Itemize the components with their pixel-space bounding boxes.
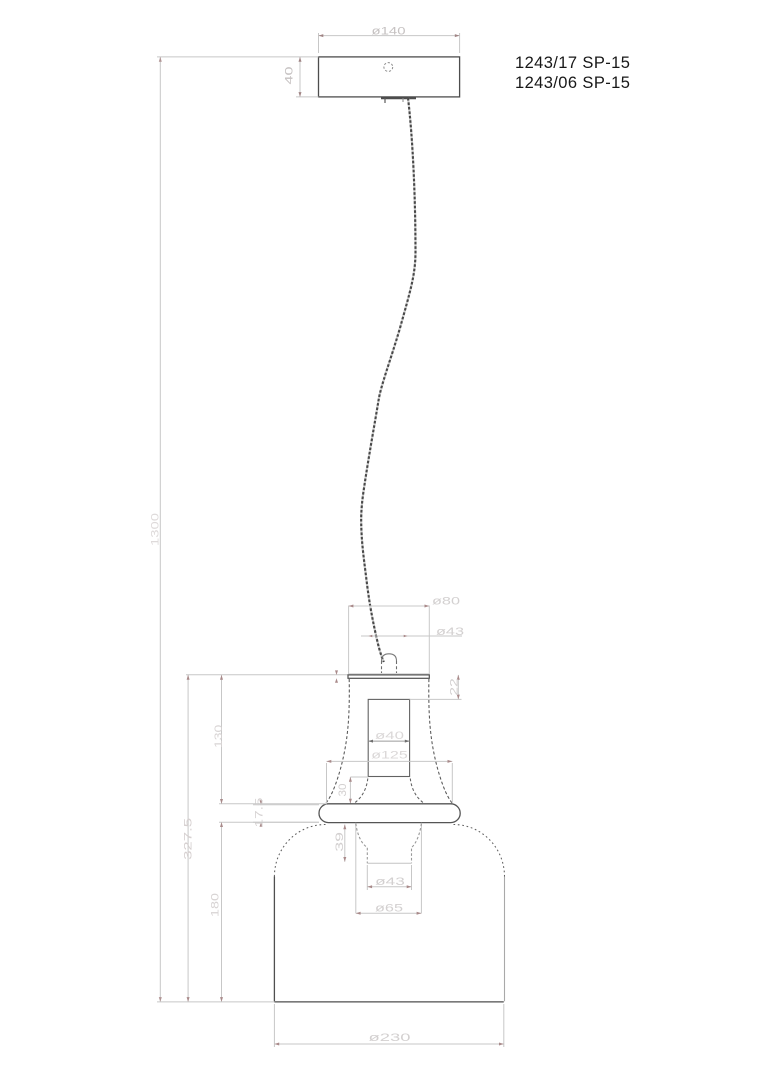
- svg-text:22: 22: [449, 678, 461, 696]
- svg-text:39: 39: [334, 832, 346, 852]
- svg-text:ø125: ø125: [371, 750, 408, 762]
- svg-text:130: 130: [213, 725, 225, 748]
- svg-text:ø230: ø230: [369, 1032, 411, 1044]
- svg-text:ø80: ø80: [432, 596, 460, 608]
- svg-text:ø140: ø140: [372, 26, 406, 38]
- svg-text:ø43: ø43: [436, 626, 464, 638]
- svg-text:ø40: ø40: [375, 730, 404, 742]
- svg-text:40: 40: [284, 67, 296, 85]
- svg-text:1243/06 SP-15: 1243/06 SP-15: [515, 74, 630, 92]
- svg-text:30: 30: [337, 784, 349, 797]
- svg-text:1300: 1300: [150, 513, 162, 546]
- svg-text:ø65: ø65: [375, 902, 403, 914]
- svg-text:180: 180: [210, 893, 222, 917]
- svg-text:ø43: ø43: [375, 876, 405, 888]
- svg-text:1243/17 SP-15: 1243/17 SP-15: [515, 54, 630, 72]
- svg-text:17.5: 17.5: [254, 798, 266, 828]
- svg-text:327.5: 327.5: [183, 818, 195, 860]
